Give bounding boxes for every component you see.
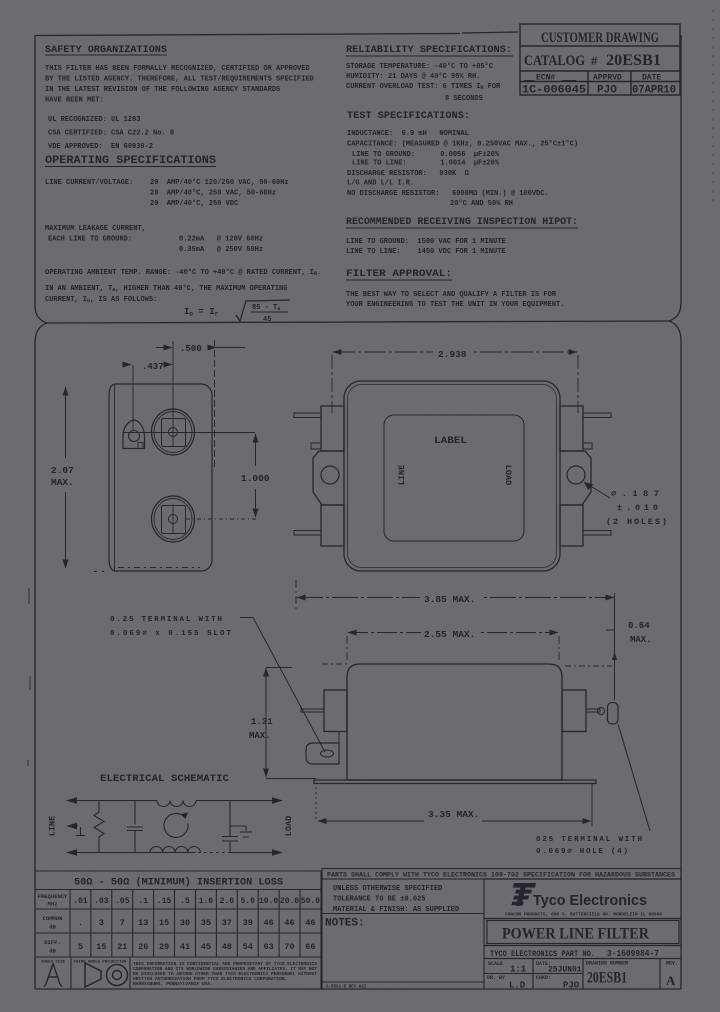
svg-text:2.07: 2.07 (51, 465, 74, 476)
svg-text:48: 48 (222, 942, 232, 952)
svg-text:CUSTOMER DRAWING: CUSTOMER DRAWING (541, 30, 659, 46)
svg-text:0.64: 0.64 (628, 621, 650, 631)
svg-text:13: 13 (138, 918, 148, 928)
svg-text:20 AMP/40°C, 250 VAC, 50-60Hz: 20 AMP/40°C, 250 VAC, 50-60Hz (150, 189, 276, 198)
svg-text:20 AMP/40°C 120/250 VAC, 50-6: 20 AMP/40°C 120/250 VAC, 50-60Hz (150, 178, 289, 187)
svg-text:A: A (666, 973, 676, 988)
svg-text:EACH LINE TO GROUND:: EACH LINE TO GROUND: (48, 236, 132, 244)
svg-text:41: 41 (180, 942, 190, 952)
svg-text:IN THE LATEST REVISION OF THE: IN THE LATEST REVISION OF THE FOLLOWING … (45, 86, 280, 94)
svg-text:1:1: 1:1 (510, 965, 527, 975)
svg-text:.5: .5 (180, 897, 190, 906)
svg-text:LINE: LINE (397, 465, 407, 485)
svg-text:REV.: REV. (666, 961, 678, 967)
svg-text:CURRENT OVERLOAD TEST: 6 TIMES: CURRENT OVERLOAD TEST: 6 TIMES IR FOR (346, 83, 501, 91)
svg-text:MAXIMUM LEAKAGE CURRENT,: MAXIMUM LEAKAGE CURRENT, (45, 225, 146, 233)
svg-text:dB: dB (49, 924, 56, 931)
svg-text:TOLERANCE TO BE ±0.025: TOLERANCE TO BE ±0.025 (333, 896, 425, 904)
svg-text:THIRD ANGLE PROJECTION: THIRD ANGLE PROJECTION (74, 961, 127, 965)
svg-text:THE BEST WAY TO SELECT AND QUA: THE BEST WAY TO SELECT AND QUALIFY A FIL… (346, 291, 557, 299)
svg-text:CSA CERTIFIED: CSA C22.2 No. 8: CSA CERTIFIED: CSA C22.2 No. 8 (48, 130, 174, 138)
svg-text:POWER LINE FILTER: POWER LINE FILTER (502, 926, 649, 943)
svg-text:1C-006045: 1C-006045 (522, 85, 586, 97)
svg-text:HAVE BEEN MET:: HAVE BEEN MET: (45, 97, 104, 105)
svg-text:.1: .1 (138, 897, 148, 906)
svg-text:SAFETY ORGANIZATIONS: SAFETY ORGANIZATIONS (45, 44, 167, 56)
svg-text:PJO: PJO (563, 981, 580, 991)
svg-text:MAX.: MAX. (630, 635, 652, 645)
svg-text:37: 37 (222, 918, 232, 928)
svg-text:1.000: 1.000 (241, 473, 270, 484)
svg-text:10.0: 10.0 (259, 897, 278, 906)
svg-text:CHKD:: CHKD: (536, 975, 551, 981)
svg-text:45: 45 (201, 942, 211, 952)
svg-text:50Ω - 50Ω (MINIMUM) INSERTION: 50Ω - 50Ω (MINIMUM) INSERTION LOSS (74, 877, 283, 889)
svg-text:TEST SPECIFICATIONS:: TEST SPECIFICATIONS: (347, 110, 470, 122)
svg-text:20ESB1: 20ESB1 (587, 970, 627, 987)
svg-text:7: 7 (120, 918, 125, 928)
svg-text:.500: .500 (180, 344, 202, 354)
svg-text:NOTES:: NOTES: (325, 918, 365, 930)
svg-text:0.25 TERMINAL WITH: 0.25 TERMINAL WITH (110, 616, 222, 624)
svg-text:LOAD: LOAD (284, 816, 294, 836)
svg-text:26: 26 (138, 942, 148, 952)
svg-text:dB: dB (49, 948, 56, 955)
svg-text:025 TERMINAL WITH: 025 TERMINAL WITH (536, 836, 642, 844)
svg-text:DIFF.: DIFF. (44, 939, 61, 946)
svg-text:35: 35 (201, 918, 211, 928)
svg-text:PJO: PJO (597, 85, 617, 97)
svg-text:DRAWING NUMBER: DRAWING NUMBER (586, 961, 628, 967)
svg-text:DR. BY: DR. BY (487, 975, 505, 981)
svg-text:STORAGE TEMPERATURE: -40°C TO: STORAGE TEMPERATURE: -40°C TO +85°C (346, 62, 493, 71)
svg-text:HARRISBURG, PENNSYLVANIA USA.: HARRISBURG, PENNSYLVANIA USA. (133, 981, 213, 987)
svg-text:LINE TO LINE: 1450 VDC FOR: LINE TO LINE: 1450 VDC FOR 1 MINUTE (346, 248, 506, 256)
svg-text:.437: .437 (142, 362, 164, 372)
svg-text:L/G AND L/L I.R.: L/G AND L/L I.R. (347, 180, 414, 188)
svg-text:8 SECONDS: 8 SECONDS (445, 95, 483, 103)
svg-text:NO DISCHARGE RESISTOR: 6000M: NO DISCHARGE RESISTOR: 6000MΩ (MIN.) @ 1… (347, 190, 549, 198)
svg-text:2.0: 2.0 (220, 897, 235, 906)
svg-text:85 - Ta: 85 - Ta (252, 304, 280, 312)
svg-text:MAX.: MAX. (51, 477, 74, 488)
svg-text:SCALE: SCALE (488, 961, 503, 967)
svg-text:1.0: 1.0 (199, 897, 214, 906)
svg-text:A-0591-B REV 02Z: A-0591-B REV 02Z (326, 986, 367, 990)
svg-text:LINE TO GROUND: 1500 VAC FOR: LINE TO GROUND: 1500 VAC FOR 1 MINUTE (346, 238, 506, 246)
svg-text:54: 54 (243, 942, 253, 952)
svg-text:66: 66 (305, 942, 315, 952)
svg-text:OPERATING AMBIENT TEMP. RANGE:: OPERATING AMBIENT TEMP. RANGE: -40°C TO … (45, 268, 321, 277)
svg-text:MATERIAL & FINISH: AS SUPPLIED: MATERIAL & FINISH: AS SUPPLIED (333, 906, 459, 914)
svg-text:MAX.: MAX. (249, 731, 271, 741)
svg-text:#: # (591, 53, 598, 68)
svg-text:BY THE LISTED AGENCY. THEREFOR: BY THE LISTED AGENCY. THEREFORE, ALL TES… (45, 76, 314, 84)
svg-text:1.31: 1.31 (251, 717, 273, 727)
svg-text:PARTS SHALL COMPLY WITH TYCO E: PARTS SHALL COMPLY WITH TYCO ELECTRONICS… (327, 872, 675, 880)
svg-text:ELECTRICAL SCHEMATIC: ELECTRICAL SCHEMATIC (100, 774, 229, 785)
svg-text:CORCOM PRODUCTS, 800 S. BUTTER: CORCOM PRODUCTS, 800 S. BUTTERFIELD RD. … (505, 912, 662, 918)
svg-text:3.85 MAX.: 3.85 MAX. (424, 594, 475, 605)
svg-text:INDUCTANCE: 0.9 mH NOMINAL: INDUCTANCE: 0.9 mH NOMINAL (347, 130, 469, 138)
svg-text:(2 HOLES): (2 HOLES) (606, 517, 667, 527)
svg-text:25JUN01: 25JUN01 (548, 966, 582, 975)
svg-text:LOAD: LOAD (503, 465, 513, 485)
svg-text:46: 46 (305, 918, 315, 928)
svg-text:3-1609984-7: 3-1609984-7 (607, 949, 659, 959)
svg-text:63: 63 (263, 942, 273, 952)
svg-text:LINE: LINE (48, 816, 58, 836)
svg-text:IN AN AMBIENT, Ta, HIGHER THAN: IN AN AMBIENT, Ta, HIGHER THAN 40°C, THE… (45, 284, 287, 293)
svg-text:LINE TO LINE: 1.0014 μ: LINE TO LINE: 1.0014 μF±20% (352, 160, 500, 168)
svg-text:RECOMMENDED RECEIVING INSPECTI: RECOMMENDED RECEIVING INSPECTION HIPOT: (346, 216, 578, 228)
svg-text:0.069∅ HOLE (4): 0.069∅ HOLE (4) (536, 848, 628, 856)
svg-text:20°C AND 50% RH: 20°C AND 50% RH (450, 199, 513, 208)
svg-text:3.35 MAX.: 3.35 MAX. (428, 809, 479, 820)
svg-text:07APR10: 07APR10 (632, 85, 676, 97)
svg-text:FREQUENCY: FREQUENCY (38, 893, 68, 900)
svg-text:Tyco Electronics: Tyco Electronics (533, 892, 647, 909)
svg-text:CURRENT, Io, IS AS FOLLOWS:: CURRENT, Io, IS AS FOLLOWS: (45, 296, 157, 304)
svg-text:APPRVD: APPRVD (593, 74, 622, 83)
svg-text:50.0: 50.0 (301, 897, 320, 906)
svg-text:.01: .01 (73, 897, 88, 906)
svg-text:UNLESS OTHERWISE SPECIFIED: UNLESS OTHERWISE SPECIFIED (333, 885, 442, 893)
svg-text:COMMON: COMMON (43, 915, 63, 922)
svg-text:29: 29 (159, 942, 169, 952)
svg-text:5: 5 (78, 942, 83, 952)
svg-text:HUMIDITY: 21 DAYS @ 40°C 95% R: HUMIDITY: 21 DAYS @ 40°C 95% RH. (346, 72, 480, 81)
svg-text:2.938: 2.938 (438, 349, 467, 360)
svg-text:20ESB1: 20ESB1 (606, 52, 661, 69)
svg-text:20 AMP/40°C, 250 VDC: 20 AMP/40°C, 250 VDC (150, 199, 238, 208)
svg-text:UL RECOGNIZED: UL 1283: UL RECOGNIZED: UL 1283 (48, 116, 140, 124)
svg-text:YOUR ENGINEERING TO TEST THE U: YOUR ENGINEERING TO TEST THE UNIT IN YOU… (346, 301, 564, 309)
svg-text:THIS FILTER HAS BEEN FORMALLY: THIS FILTER HAS BEEN FORMALLY RECOGNIZED… (45, 65, 310, 73)
svg-text:.03: .03 (94, 897, 109, 906)
svg-text:LABEL: LABEL (434, 436, 467, 447)
svg-text:LINE CURRENT/VOLTAGE:: LINE CURRENT/VOLTAGE: (45, 179, 133, 187)
svg-text:.05: .05 (115, 897, 130, 906)
svg-text:15: 15 (159, 918, 169, 928)
svg-text:VDE APPROVED: EN 60939-2: VDE APPROVED: EN 60939-2 (48, 143, 153, 151)
svg-text:RELIABILITY SPECIFICATIONS:: RELIABILITY SPECIFICATIONS: (346, 44, 512, 56)
svg-text:2.55 MAX.: 2.55 MAX. (424, 629, 475, 640)
svg-text:70: 70 (284, 942, 294, 952)
svg-text:5.0: 5.0 (240, 897, 255, 906)
svg-text:15: 15 (96, 942, 106, 952)
svg-text:ECN#: ECN# (536, 74, 555, 83)
svg-text:39: 39 (243, 918, 253, 928)
svg-text:L.D: L.D (509, 981, 526, 991)
svg-text:.: . (78, 918, 83, 928)
svg-text:Io = Ir: Io = Ir (184, 307, 219, 318)
svg-text:CAPACITANCE: (MEASURED @ 1KHz,: CAPACITANCE: (MEASURED @ 1KHz, 0.250VAC … (347, 140, 578, 149)
svg-text:DATE: DATE (642, 74, 661, 83)
svg-text:0.22mA @ 120V 60Hz: 0.22mA @ 120V 60Hz (179, 236, 263, 244)
svg-text:21: 21 (117, 942, 127, 952)
svg-text:LINE TO GROUND: 0.0056 μ: LINE TO GROUND: 0.0056 μF±20% (352, 151, 500, 159)
svg-text:30: 30 (180, 918, 190, 928)
svg-text:TYCO ELECTRONICS PART NO.: TYCO ELECTRONICS PART NO. (490, 950, 595, 959)
svg-text:.15: .15 (157, 897, 172, 906)
svg-text:46: 46 (263, 918, 273, 928)
svg-text:FILTER APPROVAL:: FILTER APPROVAL: (346, 268, 452, 280)
svg-text:20.0: 20.0 (280, 897, 299, 906)
svg-text:46: 46 (284, 918, 294, 928)
svg-text:OPERATING SPECIFICATIONS: OPERATING SPECIFICATIONS (45, 155, 216, 167)
svg-text:MHz: MHz (48, 901, 58, 908)
svg-text:DISCHARGE RESISTOR: 930K Ω: DISCHARGE RESISTOR: 930K Ω (347, 170, 470, 178)
svg-text:45: 45 (263, 316, 271, 324)
svg-text:0.35mA @ 250V 50Hz: 0.35mA @ 250V 50Hz (179, 246, 263, 254)
svg-text:3: 3 (99, 918, 104, 928)
svg-text:CATALOG: CATALOG (524, 53, 585, 69)
